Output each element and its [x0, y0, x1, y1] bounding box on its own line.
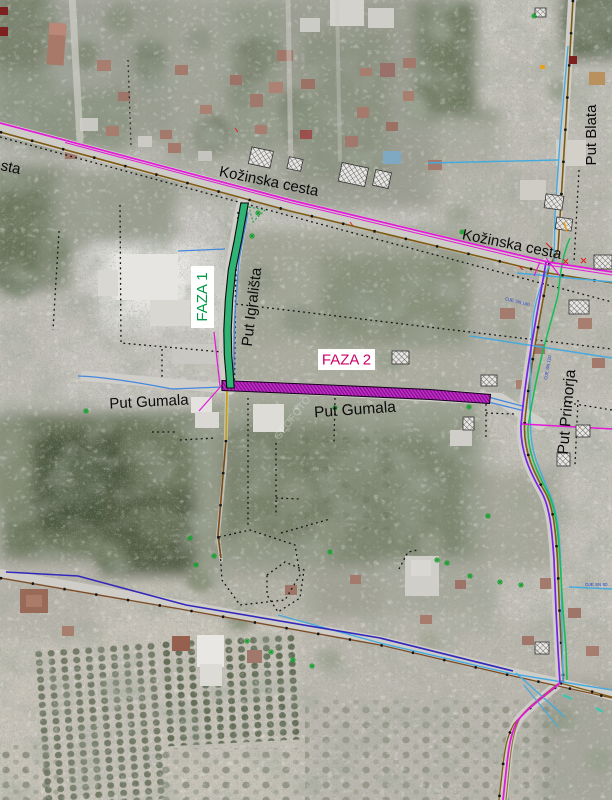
svg-text:FAZA 2: FAZA 2 [322, 352, 371, 369]
svg-text:Put Blata: Put Blata [583, 104, 600, 166]
svg-text:OJE SN 80: OJE SN 80 [585, 582, 608, 587]
svg-text:FAZA 1: FAZA 1 [194, 272, 211, 321]
